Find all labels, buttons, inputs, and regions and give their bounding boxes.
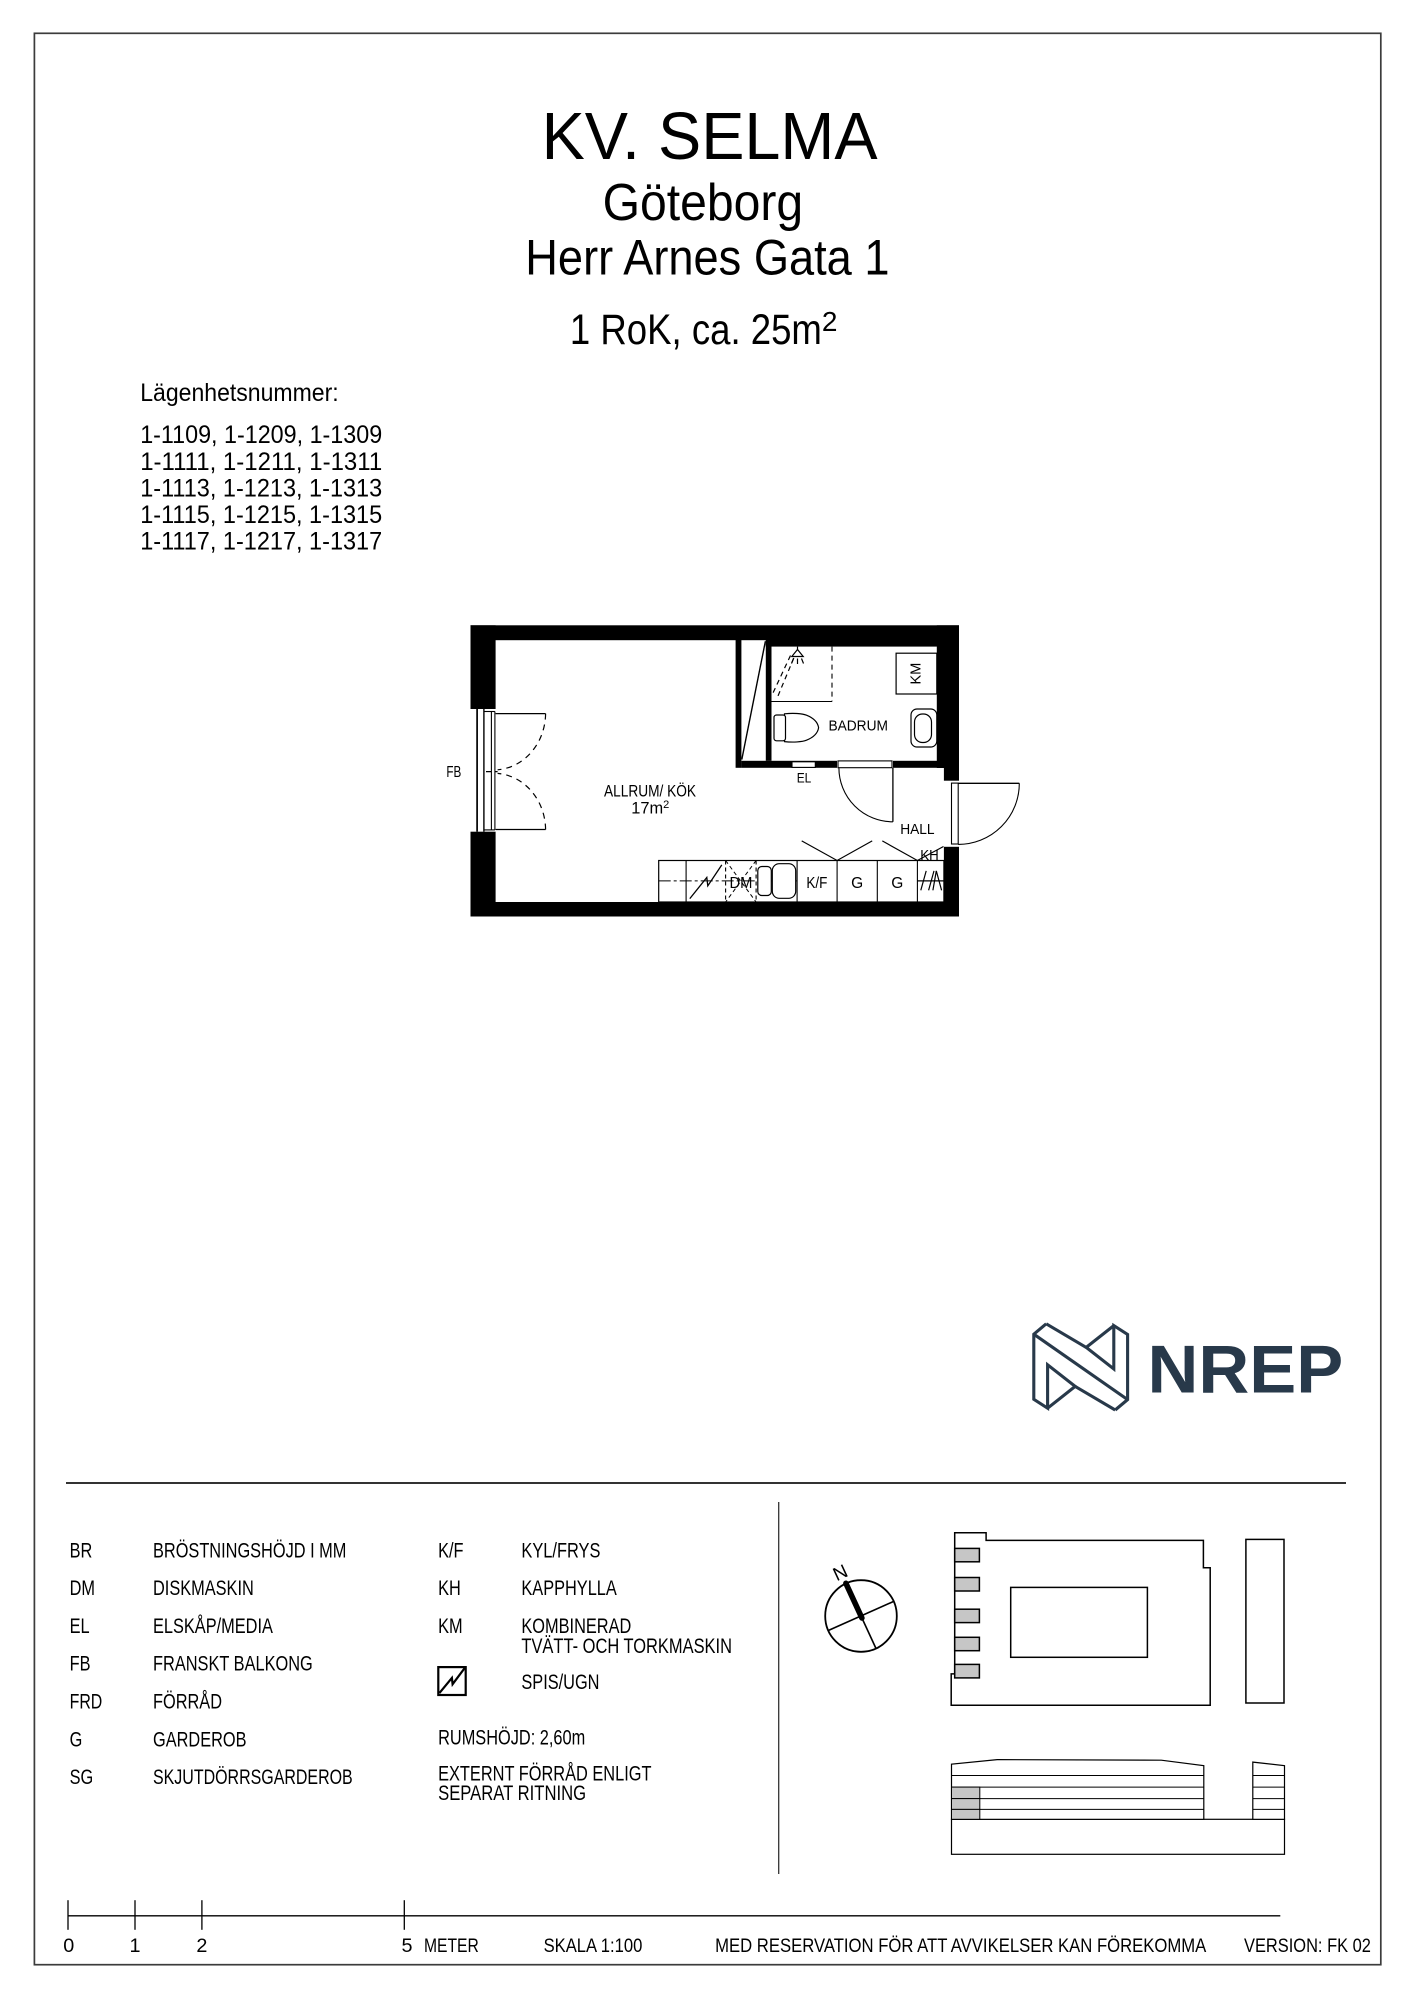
svg-text:SKALA 1:100: SKALA 1:100 [544,1935,643,1957]
svg-text:EL: EL [70,1614,90,1638]
svg-text:ALLRUM/ KÖK: ALLRUM/ KÖK [604,782,696,801]
svg-text:K/F: K/F [438,1538,463,1562]
svg-text:DM: DM [730,875,753,892]
svg-text:FRANSKT BALKONG: FRANSKT BALKONG [153,1652,313,1676]
svg-text:SG: SG [70,1765,94,1789]
svg-text:KYL/FRYS: KYL/FRYS [521,1538,600,1562]
svg-text:FB: FB [446,764,461,781]
svg-text:Göteborg: Göteborg [603,174,804,232]
svg-text:BADRUM: BADRUM [828,719,888,735]
svg-text:DM: DM [70,1576,95,1600]
svg-text:METER: METER [424,1935,479,1957]
svg-text:ELSKÅP/MEDIA: ELSKÅP/MEDIA [153,1614,273,1638]
svg-text:SKJUTDÖRRSGARDEROB: SKJUTDÖRRSGARDEROB [153,1765,353,1789]
svg-text:17m2: 17m2 [631,799,669,818]
svg-text:BR: BR [70,1538,93,1562]
svg-text:1-1117, 1-1217, 1-1317: 1-1117, 1-1217, 1-1317 [140,527,382,555]
svg-text:1-1109, 1-1209, 1-1309: 1-1109, 1-1209, 1-1309 [140,421,382,449]
svg-text:5: 5 [401,1935,412,1957]
svg-text:KH: KH [438,1576,461,1600]
svg-text:1-1115, 1-1215, 1-1315: 1-1115, 1-1215, 1-1315 [140,501,382,529]
svg-text:G: G [851,875,863,892]
svg-text:DISKMASKIN: DISKMASKIN [153,1576,254,1600]
svg-text:SPIS/UGN: SPIS/UGN [521,1670,599,1694]
svg-text:1-1113, 1-1213, 1-1313: 1-1113, 1-1213, 1-1313 [140,474,382,502]
svg-text:FRD: FRD [70,1690,103,1714]
svg-text:Lägenhetsnummer:: Lägenhetsnummer: [140,379,339,407]
svg-text:RUMSHÖJD: 2,60m: RUMSHÖJD: 2,60m [438,1726,585,1750]
svg-text:MED RESERVATION FÖR ATT AVVIKE: MED RESERVATION FÖR ATT AVVIKELSER KAN F… [715,1935,1207,1957]
svg-text:KM: KM [908,663,924,685]
svg-text:EL: EL [797,770,812,786]
svg-text:K/F: K/F [806,875,827,892]
svg-text:GARDEROB: GARDEROB [153,1727,247,1751]
svg-text:FÖRRÅD: FÖRRÅD [153,1690,222,1714]
svg-text:KAPPHYLLA: KAPPHYLLA [521,1576,617,1600]
svg-text:NREP: NREP [1148,1333,1344,1408]
svg-text:KH: KH [920,848,939,864]
svg-text:Herr Arnes Gata 1: Herr Arnes Gata 1 [525,229,889,285]
svg-text:SEPARAT RITNING: SEPARAT RITNING [438,1781,586,1805]
svg-text:G: G [70,1727,83,1751]
svg-text:1-1111, 1-1211, 1-1311: 1-1111, 1-1211, 1-1311 [140,448,382,476]
svg-text:TVÄTT- OCH TORKMASKIN: TVÄTT- OCH TORKMASKIN [521,1634,732,1658]
svg-text:HALL: HALL [900,822,934,838]
svg-text:0: 0 [63,1935,74,1957]
svg-text:1: 1 [129,1935,140,1957]
svg-text:G: G [891,875,903,892]
svg-text:VERSION: FK 02: VERSION: FK 02 [1244,1935,1371,1957]
svg-text:2: 2 [196,1935,207,1957]
svg-text:BRÖSTNINGSHÖJD I MM: BRÖSTNINGSHÖJD I MM [153,1538,346,1562]
svg-text:KM: KM [438,1614,463,1638]
svg-text:KV. SELMA: KV. SELMA [542,99,878,174]
svg-text:FB: FB [70,1652,91,1676]
svg-text:1 RoK, ca. 25m2: 1 RoK, ca. 25m2 [570,306,838,354]
